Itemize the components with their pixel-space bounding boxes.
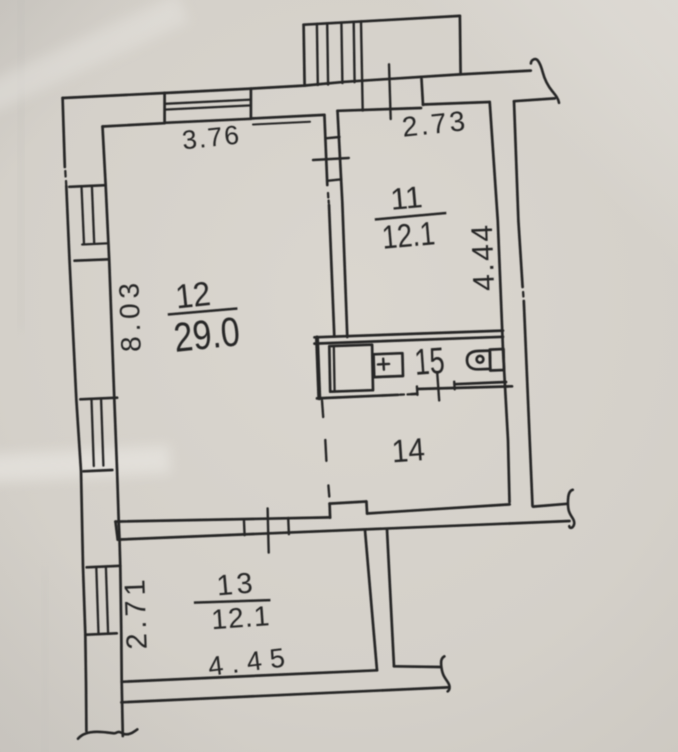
- svg-text:3.76: 3.76: [181, 120, 241, 156]
- svg-text:15: 15: [413, 340, 446, 383]
- svg-text:2.71: 2.71: [119, 579, 153, 650]
- svg-text:14: 14: [390, 431, 425, 469]
- svg-text:11: 11: [389, 180, 424, 217]
- svg-text:12.1: 12.1: [380, 214, 436, 255]
- svg-text:2.73: 2.73: [401, 105, 467, 142]
- svg-text:12.1: 12.1: [210, 600, 270, 635]
- svg-text:4.44: 4.44: [466, 224, 501, 291]
- svg-text:8.03: 8.03: [113, 282, 146, 352]
- svg-text:29.0: 29.0: [171, 308, 241, 361]
